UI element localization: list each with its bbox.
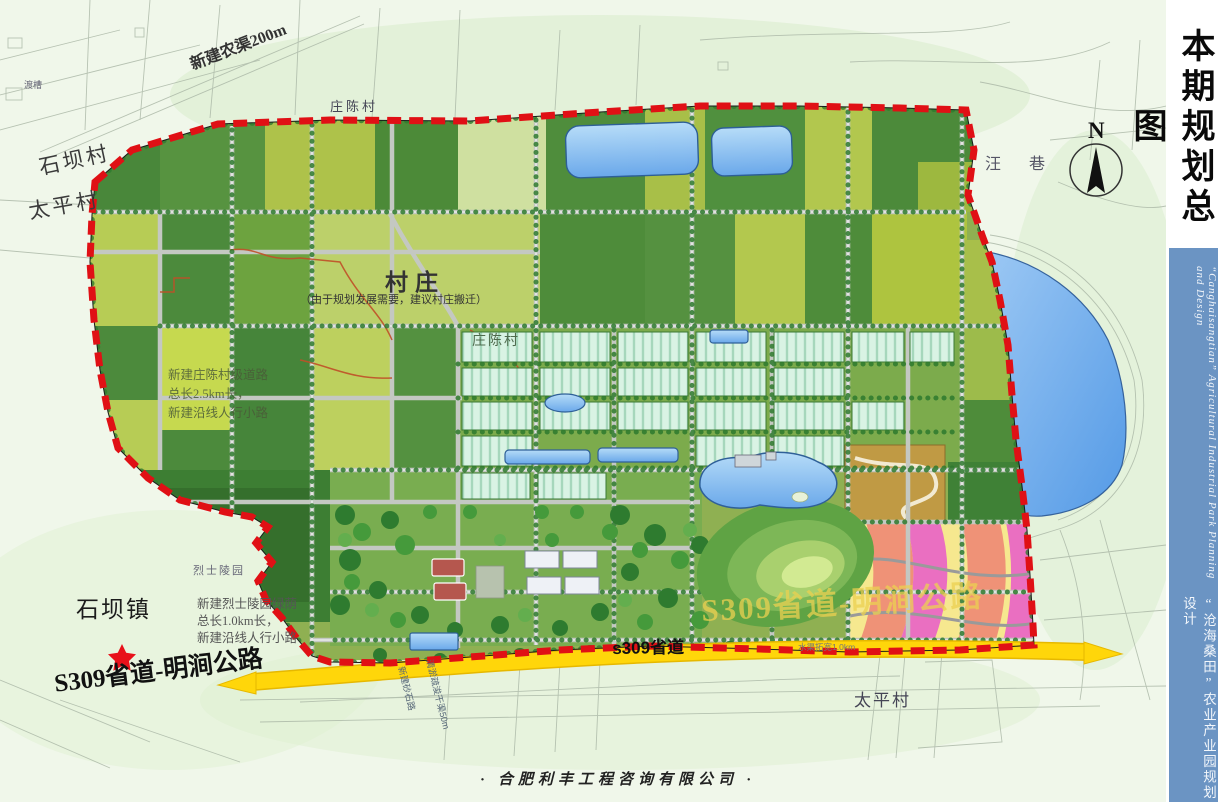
label-aqueduct: 渡槽 xyxy=(24,78,42,91)
label-wangxiang: 汪 巷 xyxy=(985,150,1057,174)
planning-sheet: 石坝村 太平村 新建农渠200m 渡槽 庄陈村 村庄 （由于规划发展需要，建议村… xyxy=(0,0,1222,802)
label-martyr-park: 烈士陵园 xyxy=(193,562,245,578)
label-town: 石坝镇 xyxy=(76,590,151,624)
subtitle-english: “Canghaisangtian” Agricultural Industria… xyxy=(1170,266,1218,596)
label-s309-on-road: s309省道 xyxy=(612,633,684,659)
label-zhuangchen-top: 庄陈村 xyxy=(330,96,378,115)
subtitle-chinese: “沧海桑田”农业产业园规划设计 xyxy=(1169,596,1218,802)
label-zhuangchen-mid: 庄陈村 xyxy=(472,330,520,350)
label-taiping-bottom: 太平村 xyxy=(854,686,911,711)
plan-map: 石坝村 太平村 新建农渠200m 渡槽 庄陈村 村庄 （由于规划发展需要，建议村… xyxy=(0,0,1166,802)
company-footer: · 合肥利丰工程咨询有限公司 · xyxy=(0,768,1166,789)
top-ponds xyxy=(565,122,793,179)
label-village-block-note: （由于规划发展需要，建议村庄搬迁） xyxy=(300,291,487,307)
label-road-small-note: 水渠拓宽1.0km xyxy=(798,641,855,653)
central-pond xyxy=(700,452,837,508)
sheet-title: 本期规划总图 xyxy=(1170,12,1218,244)
label-mid-note: 新建庄陈村级道路 总长2.5km长， 新建沿线人行小路 xyxy=(168,366,268,423)
title-sidebar: 本期规划总图 “Canghaisangtian” Agricultural In… xyxy=(1166,0,1222,802)
subtitle-panel: “Canghaisangtian” Agricultural Industria… xyxy=(1169,248,1218,802)
label-compass-n: N xyxy=(1088,118,1105,144)
